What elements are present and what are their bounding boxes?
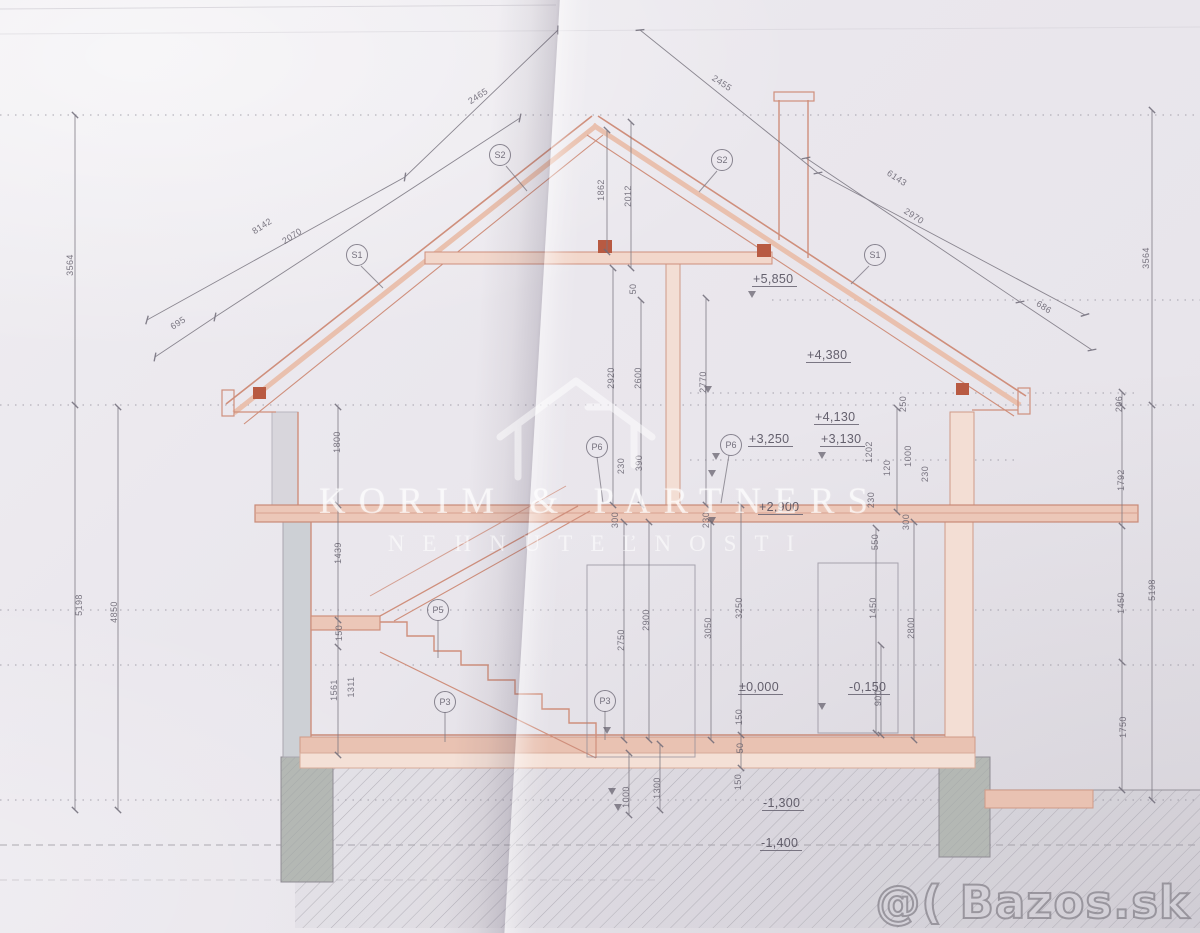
scanned-blueprint-page: 8142246569520702455614329706861862201250… xyxy=(0,0,1200,933)
realty-house-logo-icon xyxy=(492,365,662,485)
staircase xyxy=(311,486,596,758)
watermark-brand-subtitle: NEHNUTEĽNOSTI xyxy=(388,531,812,557)
watermark-photo-service: @( Bazos.sk xyxy=(875,876,1190,929)
scan-artifact-lines xyxy=(0,5,1200,34)
openings xyxy=(587,563,898,757)
watermark-brand: KORIM & PARTNERS xyxy=(319,480,881,523)
